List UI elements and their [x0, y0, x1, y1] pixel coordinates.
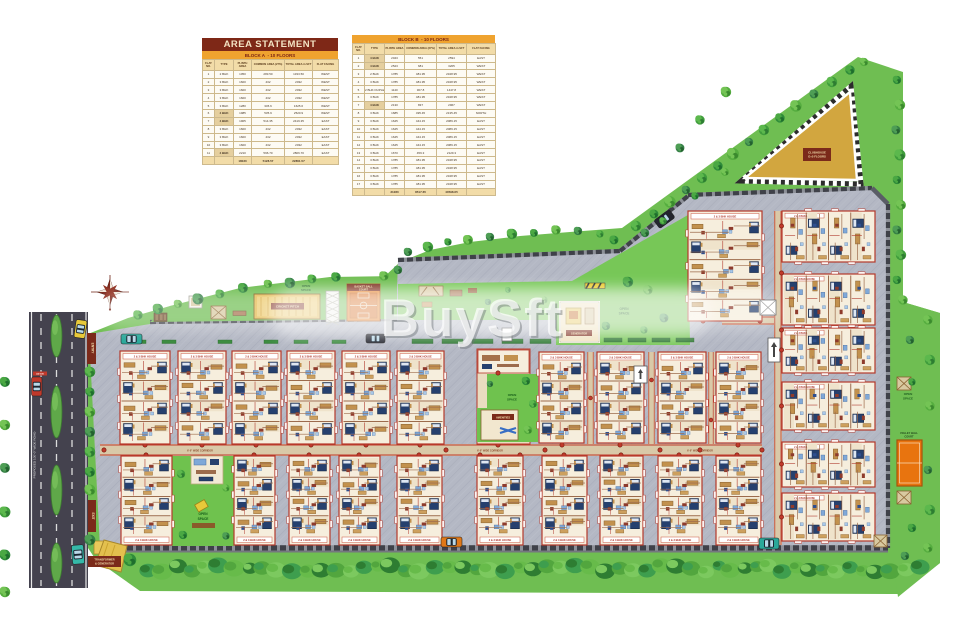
svg-text:2 & 3 BHK HOUSE: 2 & 3 BHK HOUSE — [191, 355, 214, 359]
svg-text:2 & 3 BHK HOUSE: 2 & 3 BHK HOUSE — [669, 538, 692, 542]
svg-text:SPACE: SPACE — [903, 397, 913, 401]
svg-text:2 & 3 BHK HOUSE: 2 & 3 BHK HOUSE — [553, 538, 576, 542]
svg-text:2 & 3 BHK HOUSE: 2 & 3 BHK HOUSE — [300, 355, 323, 359]
svg-text:G+5 FLOORS: G+5 FLOORS — [808, 155, 826, 159]
svg-text:2 & 3 BHK HOUSE: 2 & 3 BHK HOUSE — [727, 538, 750, 542]
svg-text:2 & 3 BHK HOUSE: 2 & 3 BHK HOUSE — [609, 356, 632, 360]
svg-text:OPEN: OPEN — [904, 392, 913, 396]
svg-text:2 & 3 BHK HOUSE: 2 & 3 BHK HOUSE — [408, 538, 431, 542]
svg-text:2 & 3 BHK HOUSE: 2 & 3 BHK HOUSE — [610, 538, 633, 542]
svg-text:2 & 3 BHK HOUSE: 2 & 3 BHK HOUSE — [243, 538, 266, 542]
svg-text:2 & 3 BHK HOUSE: 2 & 3 BHK HOUSE — [135, 538, 158, 542]
svg-text:VOLLEY BALL: VOLLEY BALL — [900, 431, 918, 435]
svg-text:2 & 3 BHK HOUSE: 2 & 3 BHK HOUSE — [714, 215, 737, 219]
svg-text:2 & 3 BHK HOUSE: 2 & 3 BHK HOUSE — [409, 355, 432, 359]
svg-text:SPACE: SPACE — [507, 398, 517, 402]
svg-text:2 & 3 BHK HOUSE: 2 & 3 BHK HOUSE — [671, 356, 694, 360]
svg-text:COURT: COURT — [904, 435, 914, 439]
svg-text:2 & 3 BHK HOUSE: 2 & 3 BHK HOUSE — [355, 355, 378, 359]
svg-text:SPACE: SPACE — [198, 517, 209, 521]
svg-text:PROPOSED 100'-0" WIDE ROAD: PROPOSED 100'-0" WIDE ROAD — [33, 431, 37, 478]
svg-text:2 & 3 BHK HOUSE: 2 & 3 BHK HOUSE — [727, 356, 750, 360]
svg-text:6'-0" WIDE CORRIDOR: 6'-0" WIDE CORRIDOR — [187, 449, 213, 452]
svg-text:2 & 3 BHK HOUSE: 2 & 3 BHK HOUSE — [489, 538, 512, 542]
svg-text:TRANSFORMER: TRANSFORMER — [94, 558, 114, 562]
svg-text:AMENITIES: AMENITIES — [496, 415, 510, 419]
svg-text:& GENERATOR: & GENERATOR — [95, 562, 114, 566]
svg-text:2 & 3 BHK HOUSE: 2 & 3 BHK HOUSE — [245, 355, 268, 359]
svg-text:2 & 3 BHK HOUSE: 2 & 3 BHK HOUSE — [550, 356, 573, 360]
svg-text:2 & 3 BHK HOUSE: 2 & 3 BHK HOUSE — [134, 355, 157, 359]
svg-text:EXIT: EXIT — [91, 512, 95, 519]
svg-text:2 & 3 BHK HOUSE: 2 & 3 BHK HOUSE — [298, 538, 321, 542]
svg-text:ENTRY: ENTRY — [91, 343, 95, 355]
svg-text:2 & 3 BHK HOUSE: 2 & 3 BHK HOUSE — [348, 538, 371, 542]
svg-text:BuySft: BuySft — [381, 289, 564, 348]
svg-text:OPEN: OPEN — [508, 393, 517, 397]
svg-text:6'-0" WIDE CORRIDOR: 6'-0" WIDE CORRIDOR — [477, 449, 503, 452]
svg-text:AD 100: AD 100 — [36, 373, 44, 376]
svg-text:OPEN: OPEN — [198, 512, 208, 516]
